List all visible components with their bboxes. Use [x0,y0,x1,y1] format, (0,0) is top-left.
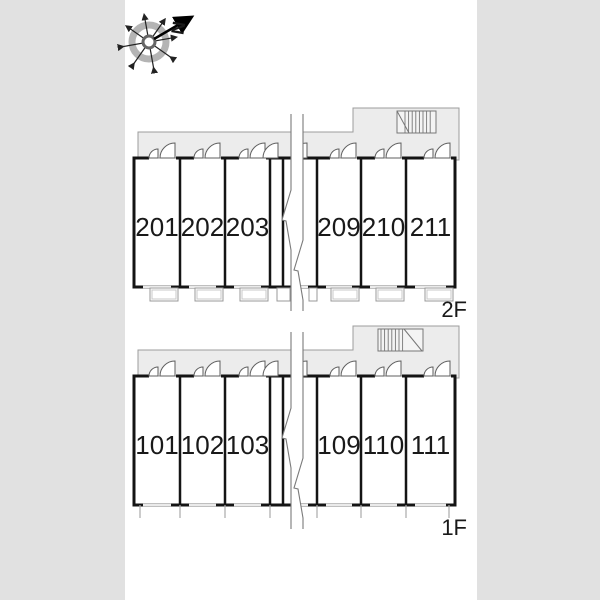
room-label-202[interactable]: 202 [181,212,224,242]
room-label-109[interactable]: 109 [317,430,360,460]
room-label-210[interactable]: 210 [362,212,405,242]
compass-icon: N [122,15,190,68]
room-label-203[interactable]: 203 [226,212,269,242]
balcony-box [277,288,290,301]
room-label-209[interactable]: 209 [317,212,360,242]
floor-plan-1f [134,326,459,529]
compass-hub [143,36,155,48]
room-label-102[interactable]: 102 [181,430,224,460]
room-label-110[interactable]: 110 [363,430,404,460]
floorplan-canvas: N 201 202 203 209 210 211 2F 101 102 103… [0,0,600,600]
room-label-111[interactable]: 111 [411,430,451,460]
floor-plan-2f [134,108,459,311]
north-label: N [167,20,189,36]
floor-label-1f: 1F [441,515,467,540]
room-label-201[interactable]: 201 [135,212,178,242]
room-label-101[interactable]: 101 [135,430,178,460]
room-label-211[interactable]: 211 [410,212,451,242]
balcony-box [309,288,317,301]
room-label-103[interactable]: 103 [226,430,269,460]
floor-label-2f: 2F [441,297,467,322]
